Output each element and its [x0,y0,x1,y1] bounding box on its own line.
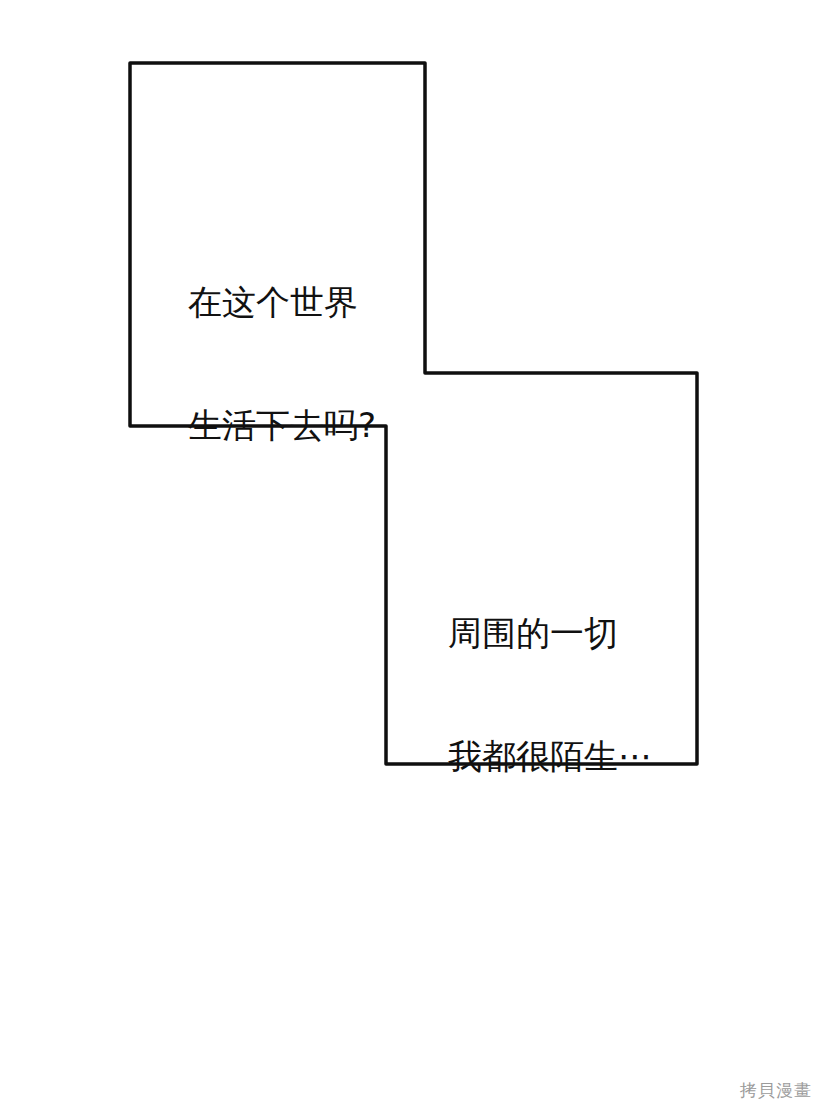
speech-bubble-2-text: 周围的一切 我都很陌生⋯ [448,531,652,859]
speech-bubbles-outline [0,0,820,1110]
speech-line: 生活下去吗? [188,405,376,446]
speech-line: 我都很陌生⋯ [448,736,652,777]
comic-page: 在这个世界 生活下去吗? 周围的一切 我都很陌生⋯ 拷貝漫畫 [0,0,820,1110]
watermark: 拷貝漫畫 [740,1080,812,1100]
speech-line: 周围的一切 [448,613,652,654]
speech-bubble-1-text: 在这个世界 生活下去吗? [188,200,376,528]
speech-line: 在这个世界 [188,282,376,323]
